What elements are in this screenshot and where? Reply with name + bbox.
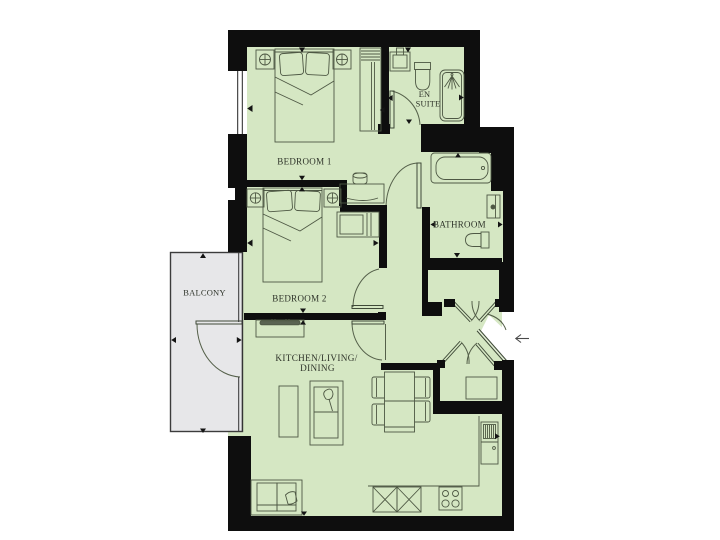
- svg-text:BALCONY: BALCONY: [183, 288, 226, 298]
- svg-text:EN: EN: [419, 90, 431, 99]
- svg-text:DINING: DINING: [300, 363, 335, 373]
- svg-text:BEDROOM 2: BEDROOM 2: [272, 293, 326, 303]
- svg-text:BATHROOM: BATHROOM: [433, 220, 486, 230]
- svg-text:SUITE: SUITE: [416, 100, 441, 109]
- svg-text:BEDROOM 1: BEDROOM 1: [277, 156, 331, 166]
- svg-text:KITCHEN/LIVING/: KITCHEN/LIVING/: [275, 353, 357, 363]
